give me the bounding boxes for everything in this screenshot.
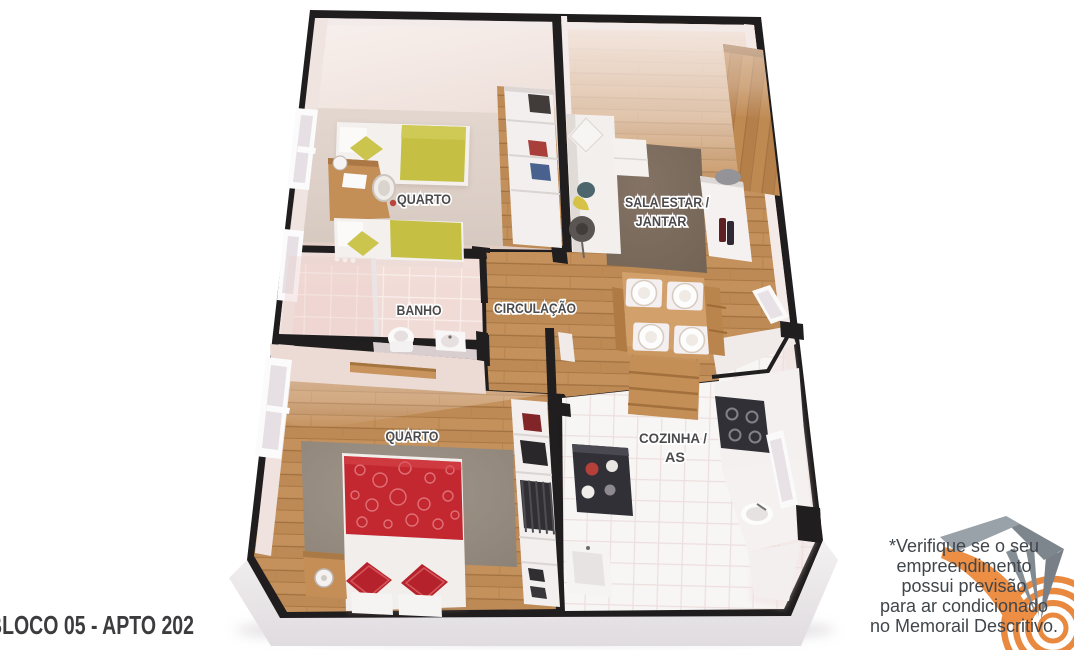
svg-text:possui previsão: possui previsão [901,576,1026,596]
svg-text:QUARTO: QUARTO [397,192,451,207]
svg-text:COZINHA /: COZINHA / [639,431,707,446]
svg-text:JANTAR: JANTAR [636,214,687,229]
svg-text:AS: AS [665,450,685,465]
svg-text:BANHO: BANHO [397,303,442,318]
svg-text:BLOCO 05 - APTO 202: BLOCO 05 - APTO 202 [0,610,194,640]
svg-text:CIRCULAÇÃO: CIRCULAÇÃO [494,301,576,316]
svg-text:empreendimento: empreendimento [896,556,1031,576]
svg-text:para ar condicionado: para ar condicionado [880,596,1048,616]
svg-text:QUARTO: QUARTO [386,429,439,444]
svg-text:*Verifique se o seu: *Verifique se o seu [889,536,1039,556]
svg-text:no Memorail Descritivo.: no Memorail Descritivo. [870,616,1058,636]
svg-text:SALA ESTAR /: SALA ESTAR / [625,195,709,210]
